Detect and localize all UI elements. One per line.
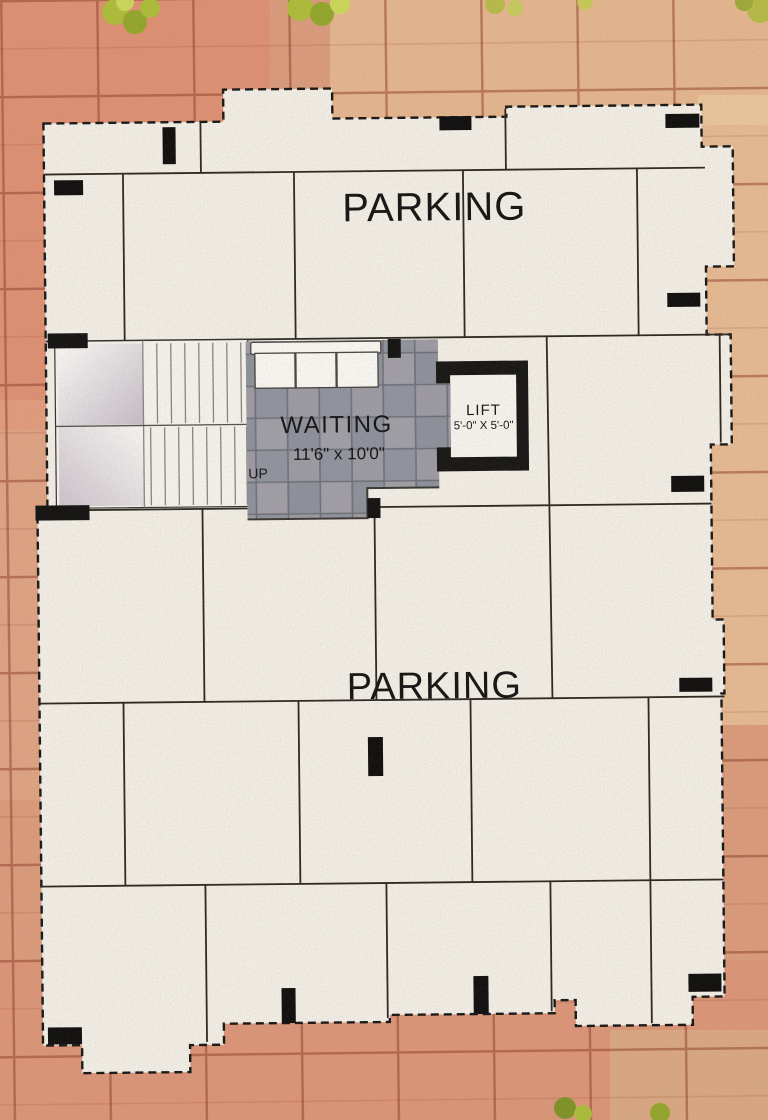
- scan-noise-overlay: [0, 0, 768, 1120]
- floor-plan: WAITING 11'6" x 10'0" UP LIFT 5'-0" X 5'…: [0, 0, 768, 1120]
